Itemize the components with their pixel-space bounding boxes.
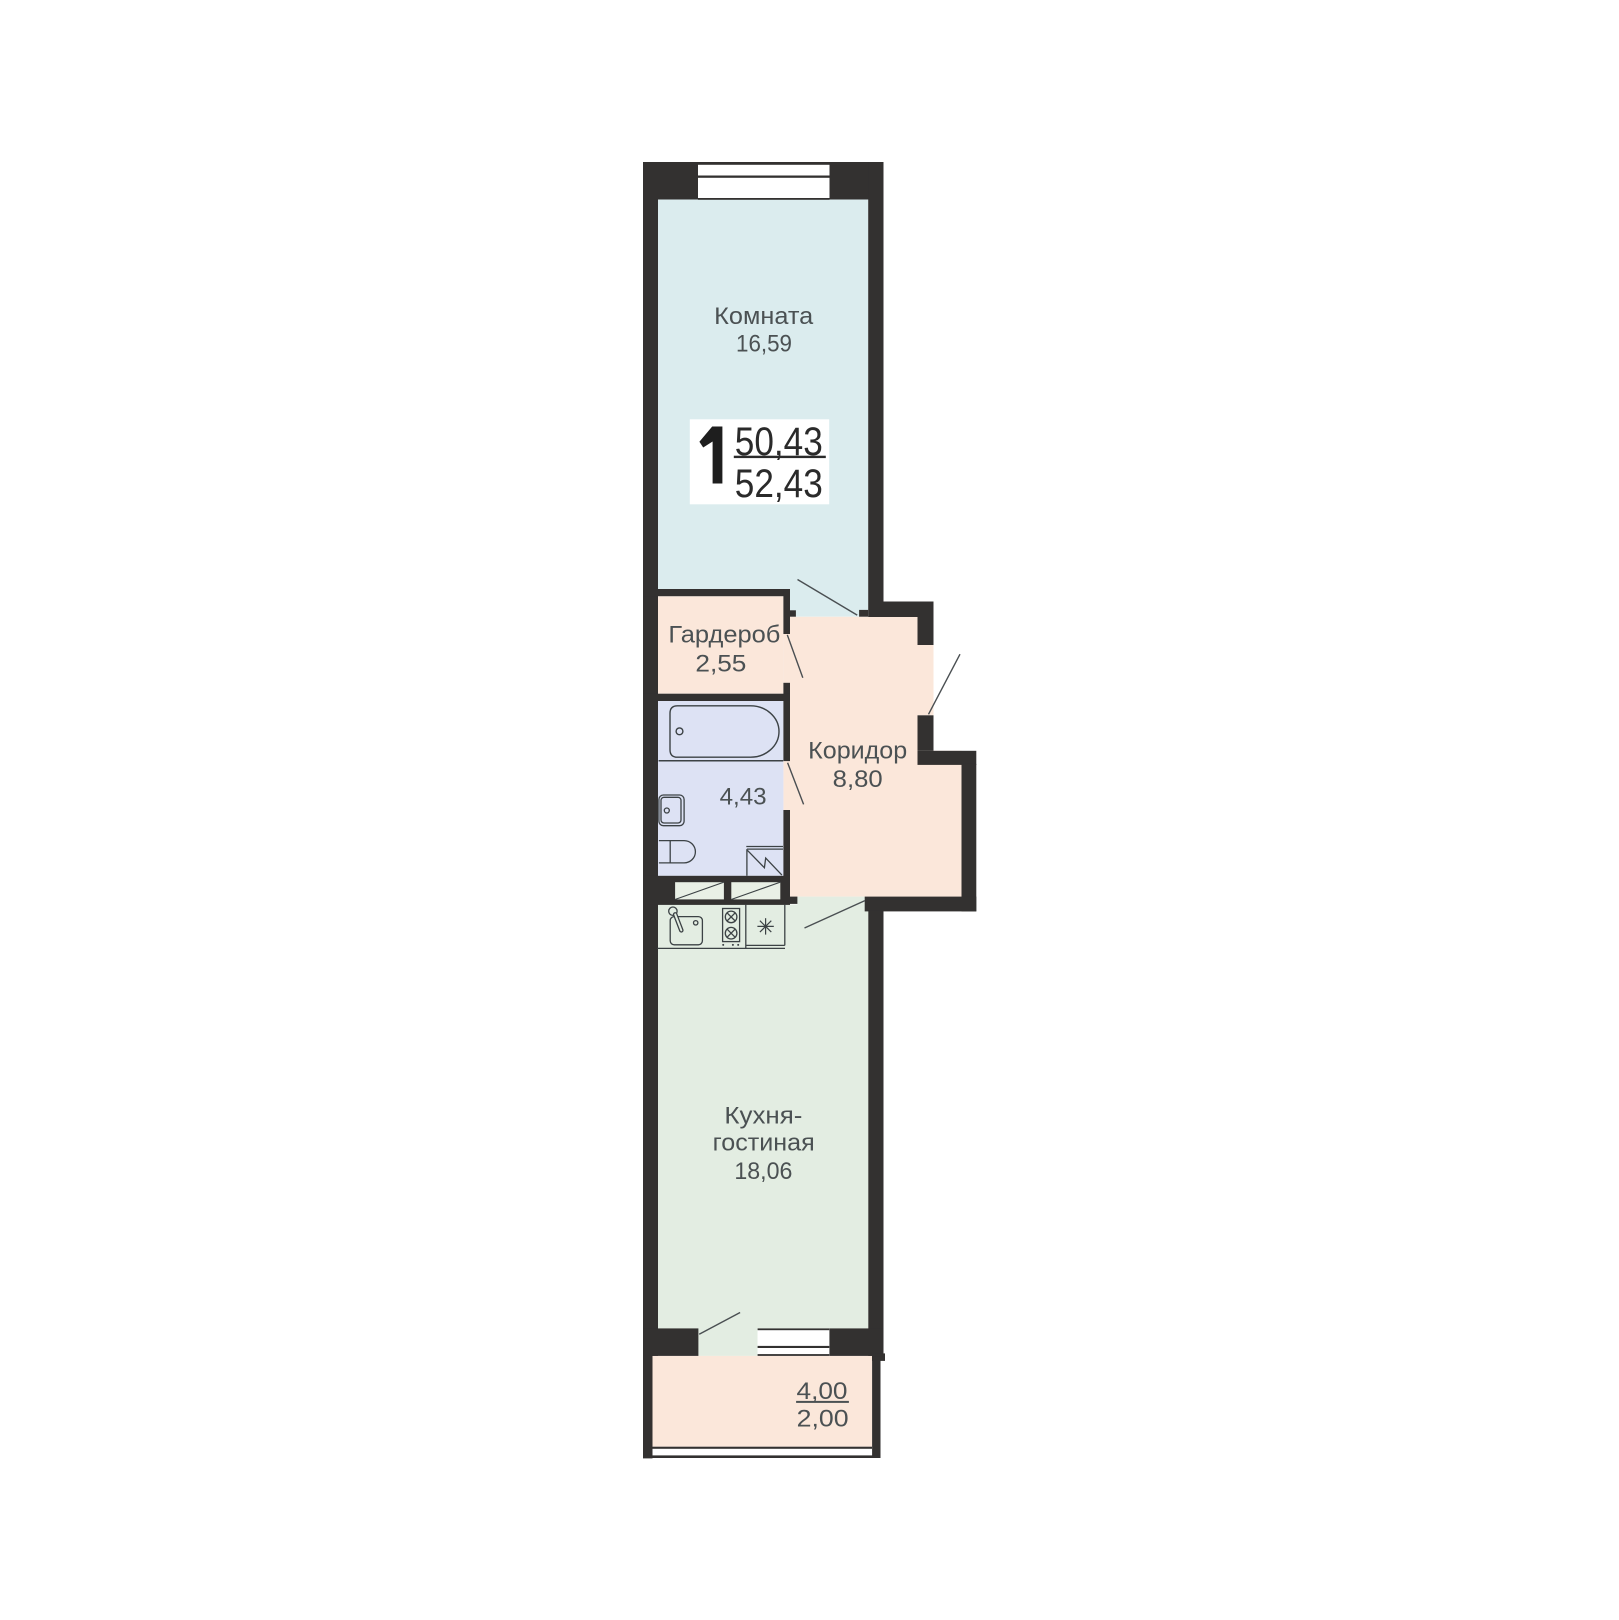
svg-text:Кухня-: Кухня- — [724, 1102, 802, 1129]
svg-text:2,00: 2,00 — [797, 1406, 849, 1433]
svg-text:Коридор: Коридор — [808, 738, 907, 765]
svg-text:16,59: 16,59 — [736, 331, 792, 358]
svg-text:4,00: 4,00 — [797, 1378, 848, 1405]
svg-text:2,55: 2,55 — [695, 650, 746, 677]
svg-text:18,06: 18,06 — [734, 1158, 792, 1185]
svg-text:52,43: 52,43 — [735, 462, 823, 506]
svg-text:Комната: Комната — [714, 303, 814, 330]
svg-text:4,43: 4,43 — [720, 784, 767, 811]
svg-text:гостиная: гостиная — [713, 1130, 815, 1157]
svg-text:8,80: 8,80 — [833, 766, 883, 793]
svg-text:Гардероб: Гардероб — [668, 622, 780, 649]
